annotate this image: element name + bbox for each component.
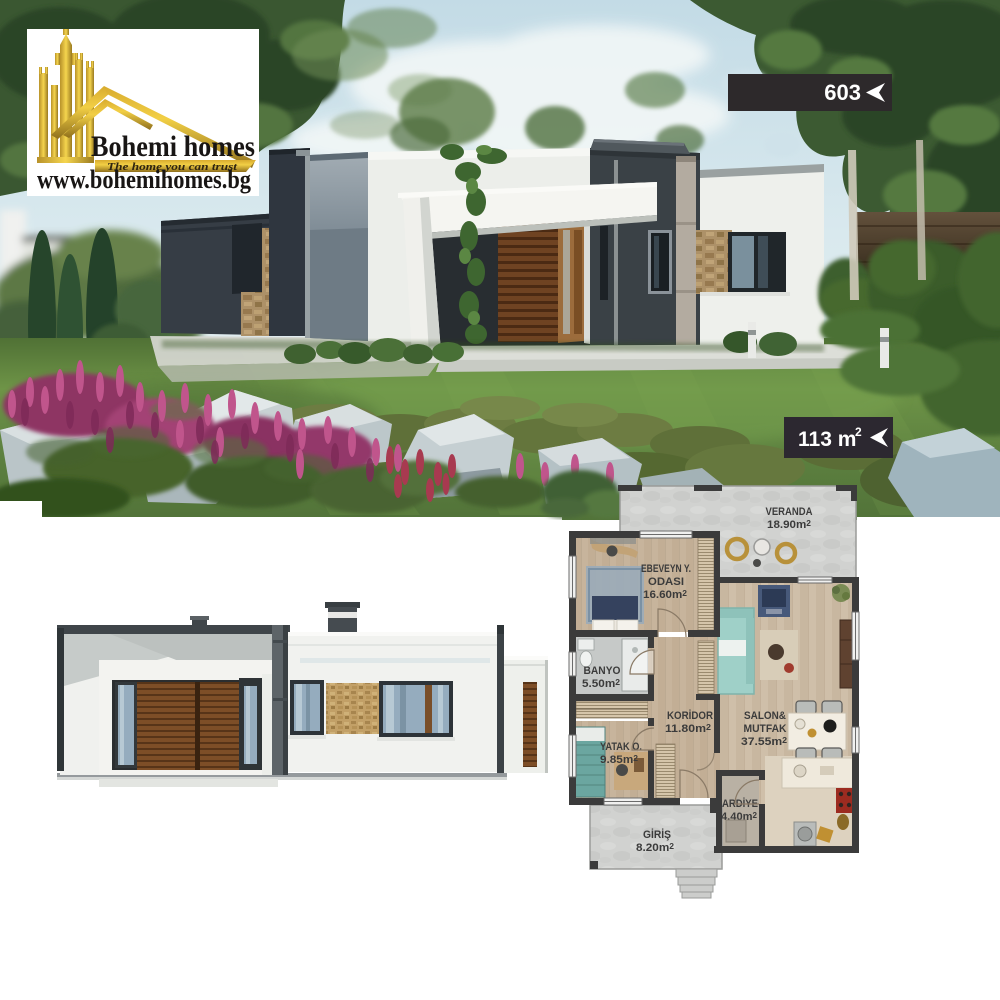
svg-text:www.bohemihomes.bg: www.bohemihomes.bg: [37, 165, 251, 194]
svg-text:VERANDA: VERANDA: [766, 506, 813, 518]
svg-text:9.85m2: 9.85m2: [600, 754, 639, 766]
svg-text:18.90m2: 18.90m2: [767, 519, 812, 531]
svg-text:YATAK O.: YATAK O.: [600, 741, 642, 753]
svg-text:2: 2: [855, 425, 862, 439]
svg-text:113 m: 113 m: [798, 428, 856, 451]
svg-text:ODASI: ODASI: [648, 576, 684, 588]
svg-text:MUTFAK: MUTFAK: [744, 723, 787, 735]
svg-text:16.60m2: 16.60m2: [643, 589, 688, 601]
svg-text:EBEVEYN Y.: EBEVEYN Y.: [641, 563, 691, 575]
svg-text:8.20m2: 8.20m2: [636, 842, 675, 854]
svg-text:11.80m2: 11.80m2: [665, 723, 712, 735]
svg-text:5.50m2: 5.50m2: [582, 678, 621, 690]
svg-text:37.55m2: 37.55m2: [741, 736, 788, 748]
svg-text:GİRİŞ: GİRİŞ: [643, 828, 671, 841]
svg-text:KORİDOR: KORİDOR: [667, 709, 713, 722]
svg-text:603: 603: [824, 80, 861, 105]
svg-text:SALON&: SALON&: [744, 710, 786, 722]
svg-text:Bohemi homes: Bohemi homes: [91, 130, 255, 163]
svg-text:BANYO: BANYO: [584, 665, 621, 677]
